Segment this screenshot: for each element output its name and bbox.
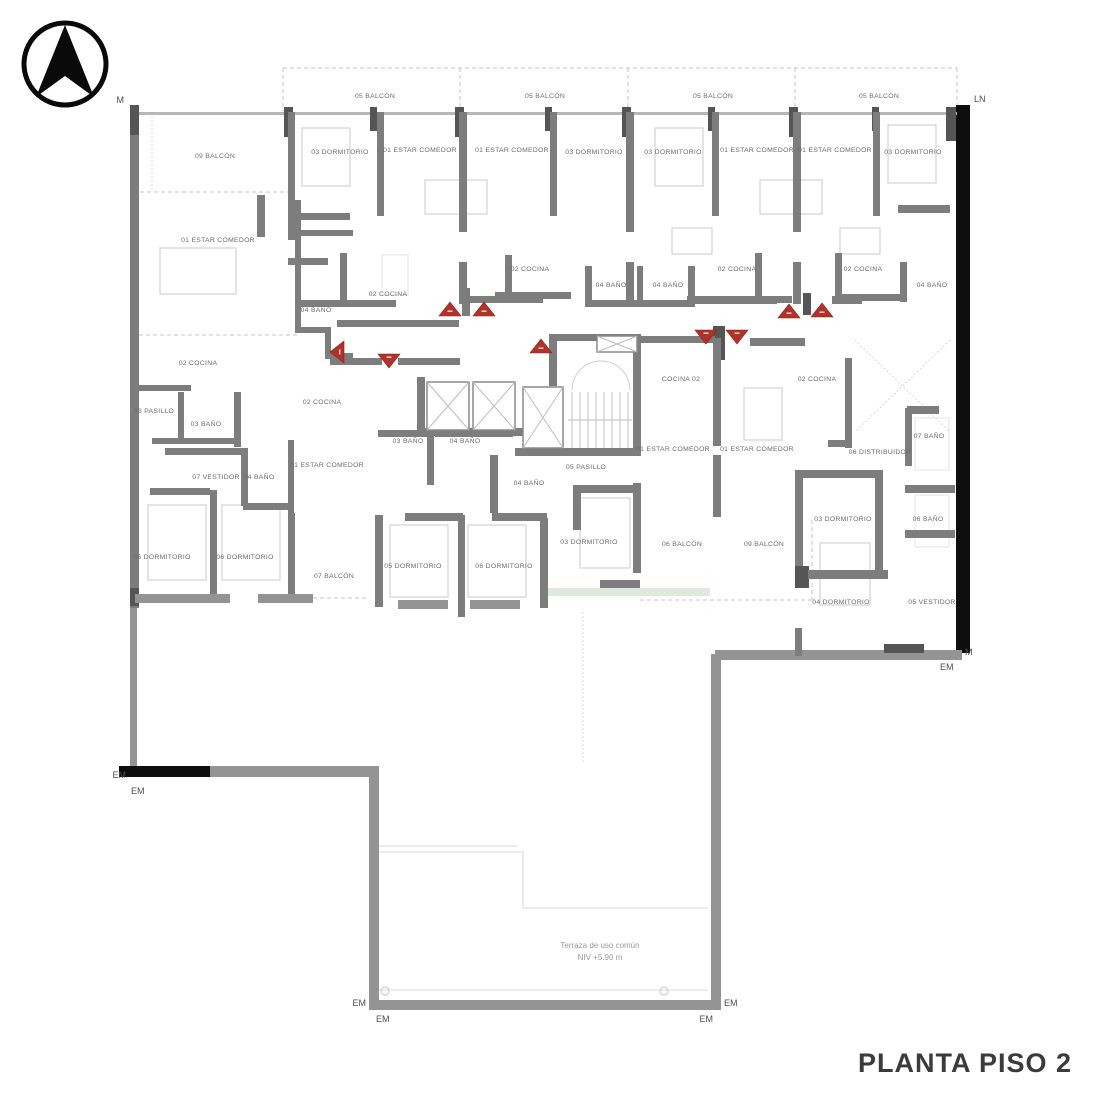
room-label: 06 DORMITORIO <box>475 563 532 570</box>
room-label: 01 ESTAR COMEDOR <box>720 446 794 453</box>
boundary-label-em: EM <box>940 662 954 672</box>
room-label: 03 DORMITORIO <box>311 149 368 156</box>
room-label: 06 BALCÓN <box>662 539 702 548</box>
room-label: 01 ESTAR COMEDOR <box>383 147 457 154</box>
boundary-label-ln: LN <box>974 94 986 104</box>
boundary-label-em: EM <box>113 770 127 780</box>
room-label: 04 DORMITORIO <box>812 599 869 606</box>
room-label: 04 BAÑO <box>596 280 627 289</box>
room-label: 01 ESTAR COMEDOR <box>636 446 710 453</box>
room-label: 05 BALCÓN <box>859 91 899 100</box>
room-label: 01 ESTAR COMEDOR <box>181 237 255 244</box>
boundary-label-em: EM <box>131 786 145 796</box>
room-label: 01 ESTAR COMEDOR <box>798 147 872 154</box>
room-label: 01 ESTAR COMEDOR <box>290 462 364 469</box>
room-label: 03 BAÑO <box>393 436 424 445</box>
room-label: 06 DORMITORIO <box>216 554 273 561</box>
room-label: 02 COCINA <box>179 360 218 367</box>
room-label: 03 BAÑO <box>191 419 222 428</box>
room-label: 08 PASILLO <box>134 408 174 415</box>
room-label: 03 DORMITORIO <box>565 149 622 156</box>
room-label: 09 BALCÓN <box>195 151 235 160</box>
boundary-label-m: M <box>965 647 973 657</box>
room-label: 05 PASILLO <box>566 464 606 471</box>
boundary-label-em: EM <box>700 1014 714 1024</box>
room-label: 05 VESTIDOR <box>908 599 956 606</box>
room-label: 03 DORMITORIO <box>644 149 701 156</box>
unit-entry-marker-icon <box>473 302 495 316</box>
room-label: 06 DISTRIBUIDOR <box>849 449 912 456</box>
room-label: 07 BALCÓN <box>314 571 354 580</box>
boundary-label-em: EM <box>376 1014 390 1024</box>
room-label: 03 DORMITORIO <box>560 539 617 546</box>
room-label: 05 BALCÓN <box>693 91 733 100</box>
unit-entry-marker-icon <box>439 302 461 316</box>
room-label: 05 BALCÓN <box>525 91 565 100</box>
room-label: 02 COCINA <box>303 399 342 406</box>
unit-entry-marker-icon <box>778 304 800 318</box>
page-title: PLANTA PISO 2 <box>858 1048 1072 1078</box>
room-label: 07 VESTIDOR <box>192 474 240 481</box>
unit-entry-marker-icon <box>530 339 552 353</box>
boundary-label-m: M <box>117 95 125 105</box>
terrace-note: Terraza de uso común NIV +5.90 m <box>560 941 639 962</box>
furniture <box>148 125 949 605</box>
room-label: 03 DORMITORIO <box>884 149 941 156</box>
north-arrow-icon <box>24 23 106 105</box>
room-label: 02 COCINA <box>511 266 550 273</box>
room-label: 03 DORMITORIO <box>814 516 871 523</box>
room-label: 06 BAÑO <box>913 514 944 523</box>
room-label: 05 DORMITORIO <box>133 554 190 561</box>
room-label: 02 COCINA <box>798 376 837 383</box>
unit-entry-marker-icon <box>726 330 748 344</box>
room-label: 04 BAÑO <box>514 478 545 487</box>
room-label: 09 BALCÓN <box>744 539 784 548</box>
room-label: COCINA 02 <box>662 376 700 383</box>
room-label: 04 BAÑO <box>917 280 948 289</box>
room-label: 04 BAÑO <box>450 436 481 445</box>
floor-plan-svg: 05 BALCÓN 05 BALCÓN 05 BALCÓN 05 BALCÓN … <box>0 0 1100 1100</box>
room-label: 01 ESTAR COMEDOR <box>475 147 549 154</box>
stair <box>568 361 632 448</box>
terrace-note-line2: NIV +5.90 m <box>578 953 623 962</box>
room-label: 07 BAÑO <box>914 431 945 440</box>
boundary-label-em: EM <box>724 998 738 1008</box>
room-label: 04 BAÑO <box>244 472 275 481</box>
room-label: 02 COCINA <box>369 291 408 298</box>
terrace-graphics <box>379 588 710 995</box>
room-label: 05 DORMITORIO <box>384 563 441 570</box>
room-label: 04 BAÑO <box>653 280 684 289</box>
floor-plan-page: 05 BALCÓN 05 BALCÓN 05 BALCÓN 05 BALCÓN … <box>0 0 1100 1100</box>
room-label: 01 ESTAR COMEDOR <box>720 147 794 154</box>
room-label: 02 COCINA <box>844 266 883 273</box>
unit-entry-marker-icon <box>811 303 833 317</box>
room-label: 02 COCINA <box>718 266 757 273</box>
room-label: 04 BAÑO <box>301 305 332 314</box>
room-label: 05 BALCÓN <box>355 91 395 100</box>
terrace-note-line1: Terraza de uso común <box>560 941 639 950</box>
boundary-label-em: EM <box>353 998 367 1008</box>
